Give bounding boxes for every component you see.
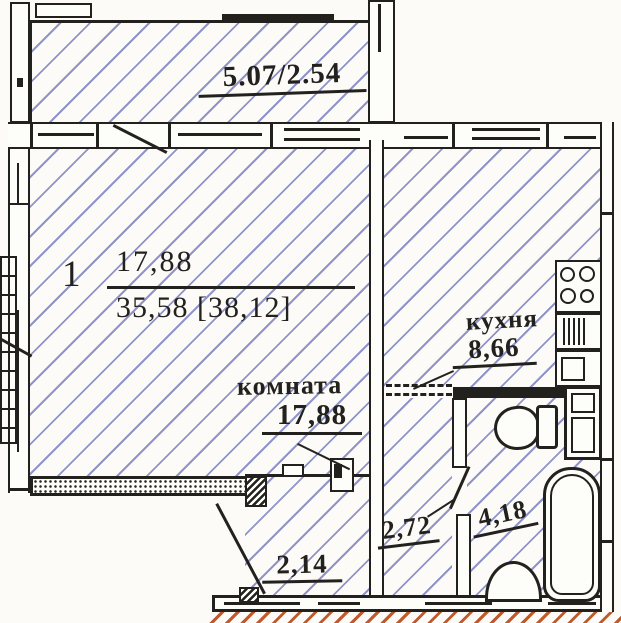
wall-inner-line: [425, 602, 492, 605]
window-sill: [284, 128, 360, 131]
wall-tick: [17, 78, 23, 87]
window-sill: [178, 133, 262, 136]
wall-inner-line: [224, 602, 300, 605]
kitchen-opening-dashed: [386, 393, 452, 396]
wall-cap: [8, 488, 30, 491]
total-area-value: 35,58 [38,12]: [116, 292, 291, 324]
hall-area: [384, 398, 452, 595]
water-heater-icon: [564, 386, 602, 460]
corridor-area-label: 2,14: [262, 549, 343, 584]
wall-inner-line: [17, 163, 19, 205]
wall-inner-line: [548, 602, 596, 605]
stairs-ladder-icon: [0, 256, 17, 444]
window-mullion: [270, 122, 273, 149]
window-sill: [38, 133, 94, 136]
wall-tick: [8, 203, 30, 205]
right-exterior-wall: [600, 122, 614, 612]
wall-tick: [600, 458, 614, 461]
window-sill: [284, 138, 360, 141]
wall-tick: [600, 212, 614, 215]
bath-partition-upper: [452, 398, 467, 468]
window-mullion: [96, 122, 99, 149]
kitchen-sink-icon: [555, 313, 602, 350]
floor-plan: 5.07/2.54 1 17,88 35,58 [38,12] комната …: [0, 0, 621, 623]
kitchen-counter-icon: [555, 350, 602, 387]
room-bottom-wall: [30, 476, 245, 496]
living-area-value: 17,88: [116, 246, 194, 278]
room-door-jamb: [282, 464, 304, 477]
window-band: [8, 122, 614, 149]
wall-tick: [600, 540, 614, 543]
entry-door-jamb: [239, 587, 259, 603]
balcony-right-wall: [368, 0, 395, 123]
wall-inner-line: [378, 4, 381, 52]
window-mullion: [168, 122, 171, 149]
window-sill: [404, 136, 448, 139]
room-name-label: комната: [237, 371, 343, 400]
window-mullion: [452, 122, 455, 149]
window-sill: [472, 137, 540, 140]
balcony-left-wall: [10, 2, 30, 123]
balcony-dim-label: 5.07/2.54: [197, 57, 366, 98]
window-sill: [472, 128, 540, 131]
window-sill: [564, 136, 596, 139]
room-area-label: 17,88: [262, 400, 362, 435]
top-left-pier: [35, 3, 92, 18]
bath-partition-lower: [456, 514, 471, 598]
stove-icon: [555, 260, 602, 313]
balcony-parapet-segment: [222, 14, 334, 21]
window-mullion: [546, 122, 549, 149]
window-mullion: [30, 122, 33, 149]
kitchen-area-label: 8,66: [451, 332, 537, 370]
bathtub-icon: [543, 467, 601, 602]
wall-pier: [245, 476, 267, 507]
wall-inner-line: [318, 602, 360, 605]
toilet-tank-icon: [536, 405, 558, 449]
unit-number: 1: [62, 256, 82, 295]
party-wall-hatch: [209, 612, 621, 623]
wall-inner-line: [17, 310, 19, 452]
fraction-bar: [107, 286, 355, 289]
